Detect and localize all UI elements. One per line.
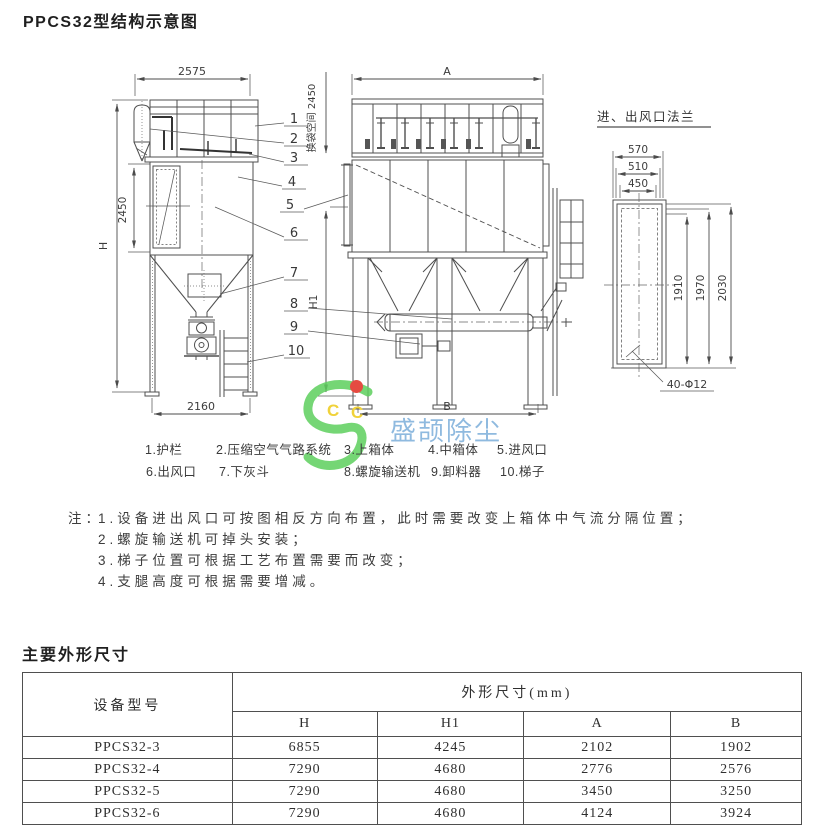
legend-item: 4.中箱体: [428, 439, 478, 458]
air-tank: [134, 101, 150, 161]
note-item: 1.设备进出风口可按图相反方向布置，此时需要改变上箱体中气流分隔位置；: [98, 508, 695, 529]
support-legs-left-view: [145, 255, 257, 396]
cell-H1: 4680: [377, 803, 524, 825]
notes-label: 注：: [68, 508, 98, 529]
cell-H: 7290: [232, 759, 377, 781]
table-row: PPCS32-3 6855 4245 2102 1902: [23, 737, 802, 759]
dim-H: H: [97, 242, 110, 250]
legend-item: 8.螺旋输送机: [344, 461, 420, 480]
dim-510: 510: [628, 161, 648, 173]
side-ladder: [553, 188, 583, 396]
ladder: [220, 330, 248, 397]
middle-casing: [150, 162, 253, 255]
legend-item: 3.上箱体: [344, 439, 394, 458]
part-label-4: 4: [288, 175, 296, 190]
middle-view: A 换袋空间 2450: [305, 65, 583, 414]
legend-item: 7.下灰斗: [219, 461, 269, 480]
legend-item: 5.进风口: [497, 439, 547, 458]
part-leaders: [150, 123, 452, 362]
cell-model: PPCS32-4: [23, 759, 233, 781]
dim-2160: 2160: [187, 400, 215, 413]
top-plate: [145, 157, 258, 162]
cell-B: 3924: [671, 803, 802, 825]
part-label-6: 6: [290, 226, 298, 241]
dim-2575: 2575: [178, 65, 206, 78]
watermark-dot-icon: [350, 380, 363, 393]
dim-bag-space: 换袋空间 2450: [305, 84, 318, 153]
table-row: PPCS32-6 7290 4680 4124 3924: [23, 803, 802, 825]
cell-H1: 4245: [377, 737, 524, 759]
dim-2030: 2030: [717, 275, 729, 302]
legend-item: 2.压缩空气气路系统: [216, 439, 331, 458]
inlet-flange: [341, 164, 353, 246]
part-label-9: 9: [290, 320, 298, 335]
hopper: [150, 255, 253, 317]
part-label-7: 7: [290, 266, 298, 281]
column-header-H: H: [232, 712, 377, 737]
part-label-8: 8: [290, 297, 298, 312]
dim-2450: 2450: [117, 197, 129, 224]
filter-bag: [503, 106, 518, 143]
dim-570: 570: [628, 144, 648, 156]
dimensions-table: 设备型号 外形尺寸(mm) H H1 A B PPCS32-3 6855 424…: [22, 672, 802, 825]
hoppers-front: [370, 258, 528, 311]
cell-B: 2576: [671, 759, 802, 781]
note-item: 3.梯子位置可根据工艺布置需要而改变；: [98, 550, 415, 571]
legend-item: 6.出风口: [146, 461, 196, 480]
note-item: 2.螺旋输送机可掉头安装；: [98, 529, 310, 550]
table-row: PPCS32-4 7290 4680 2776 2576: [23, 759, 802, 781]
dimensions-group-header: 外形尺寸(mm): [232, 673, 801, 712]
left-view: 2575 H 2450: [97, 65, 258, 414]
dimensions-section-title: 主要外形尺寸: [22, 641, 130, 665]
cell-A: 2776: [524, 759, 671, 781]
part-label-1: 1: [290, 112, 298, 127]
flange-view-title: 进、出风口法兰: [597, 110, 695, 124]
column-header-A: A: [524, 712, 671, 737]
cell-H: 7290: [232, 803, 377, 825]
cell-B: 1902: [671, 737, 802, 759]
flange-view: 进、出风口法兰 570 510 450 1910: [597, 110, 736, 391]
document-page: PPCS32型结构示意图 2575 H 2450: [0, 0, 828, 837]
cell-A: 4124: [524, 803, 671, 825]
middle-casing-front: [352, 160, 543, 252]
dim-1970: 1970: [695, 275, 707, 302]
cell-H: 6855: [232, 737, 377, 759]
pulse-piping: [152, 117, 252, 155]
model-column-header: 设备型号: [23, 673, 233, 737]
part-label-5: 5: [286, 198, 294, 213]
cell-H1: 4680: [377, 781, 524, 803]
legend-item: 1.护栏: [145, 439, 182, 458]
upper-casing: [352, 99, 543, 157]
part-label-3: 3: [290, 151, 298, 166]
dim-A: A: [443, 65, 451, 78]
guard-rail: [150, 100, 258, 157]
watermark-letter: C: [351, 403, 363, 423]
cell-model: PPCS32-5: [23, 781, 233, 803]
legend-item: 9.卸料器: [431, 461, 481, 480]
notes-block: 注： 1.设备进出风口可按图相反方向布置，此时需要改变上箱体中气流分隔位置； 2…: [68, 508, 695, 592]
cell-A: 3450: [524, 781, 671, 803]
dim-1910: 1910: [673, 275, 685, 302]
discharge-valve: [184, 320, 219, 360]
watermark-logo: [294, 374, 384, 474]
cell-model: PPCS32-3: [23, 737, 233, 759]
structure-diagram: 2575 H 2450: [0, 55, 828, 435]
page-title: PPCS32型结构示意图: [23, 8, 198, 32]
watermark-letter: C: [327, 401, 339, 421]
cell-H: 7290: [232, 781, 377, 803]
table-header-row-1: 设备型号 外形尺寸(mm): [23, 673, 802, 712]
screw-conveyor: [374, 283, 572, 331]
cell-B: 3250: [671, 781, 802, 803]
part-numbers: 1 2 3 4 5 6 7 8 9 10: [286, 112, 304, 359]
access-door: [146, 166, 190, 248]
flange-body: [604, 193, 675, 377]
legend-item: 10.梯子: [500, 461, 545, 480]
cell-A: 2102: [524, 737, 671, 759]
note-item: 4.支腿高度可根据需要增减。: [98, 571, 327, 592]
outlet-flange: [543, 164, 549, 246]
part-label-2: 2: [290, 132, 298, 147]
column-header-B: B: [671, 712, 802, 737]
dim-450: 450: [628, 178, 648, 190]
table-row: PPCS32-5 7290 4680 3450 3250: [23, 781, 802, 803]
cell-H1: 4680: [377, 759, 524, 781]
column-header-H1: H1: [377, 712, 524, 737]
part-label-10: 10: [288, 344, 305, 359]
dim-H1: H1: [308, 295, 320, 310]
cell-model: PPCS32-6: [23, 803, 233, 825]
rotary-feeder: [396, 334, 450, 358]
bolt-holes-label: 40-Φ12: [667, 378, 708, 391]
